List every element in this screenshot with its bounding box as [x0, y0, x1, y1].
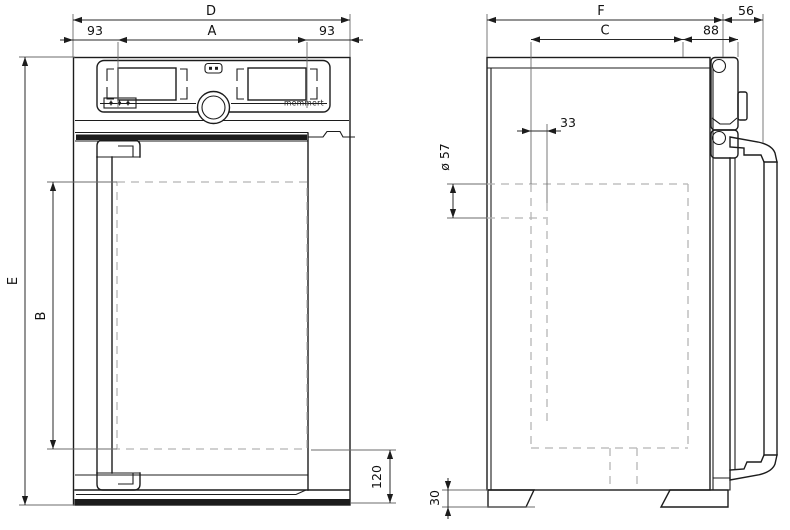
label-88: 88 [703, 23, 719, 38]
label-B: B [34, 312, 49, 321]
label-D: D [206, 4, 216, 19]
oven-dimension-drawing: memmert [0, 0, 790, 530]
label-F: F [597, 4, 604, 19]
label-93-left: 93 [87, 23, 103, 38]
label-E: E [6, 277, 21, 285]
label-port-diameter: ø 57 [437, 143, 452, 171]
label-33: 33 [560, 115, 576, 130]
control-knob [198, 92, 230, 124]
label-56: 56 [738, 3, 754, 18]
technical-drawing-sheet: memmert [0, 0, 790, 530]
label-A: A [208, 24, 217, 39]
label-C: C [600, 24, 609, 39]
label-120: 120 [369, 465, 384, 489]
brand-logo-text: memmert [284, 99, 324, 108]
label-93-right: 93 [319, 23, 335, 38]
label-30: 30 [427, 490, 442, 506]
